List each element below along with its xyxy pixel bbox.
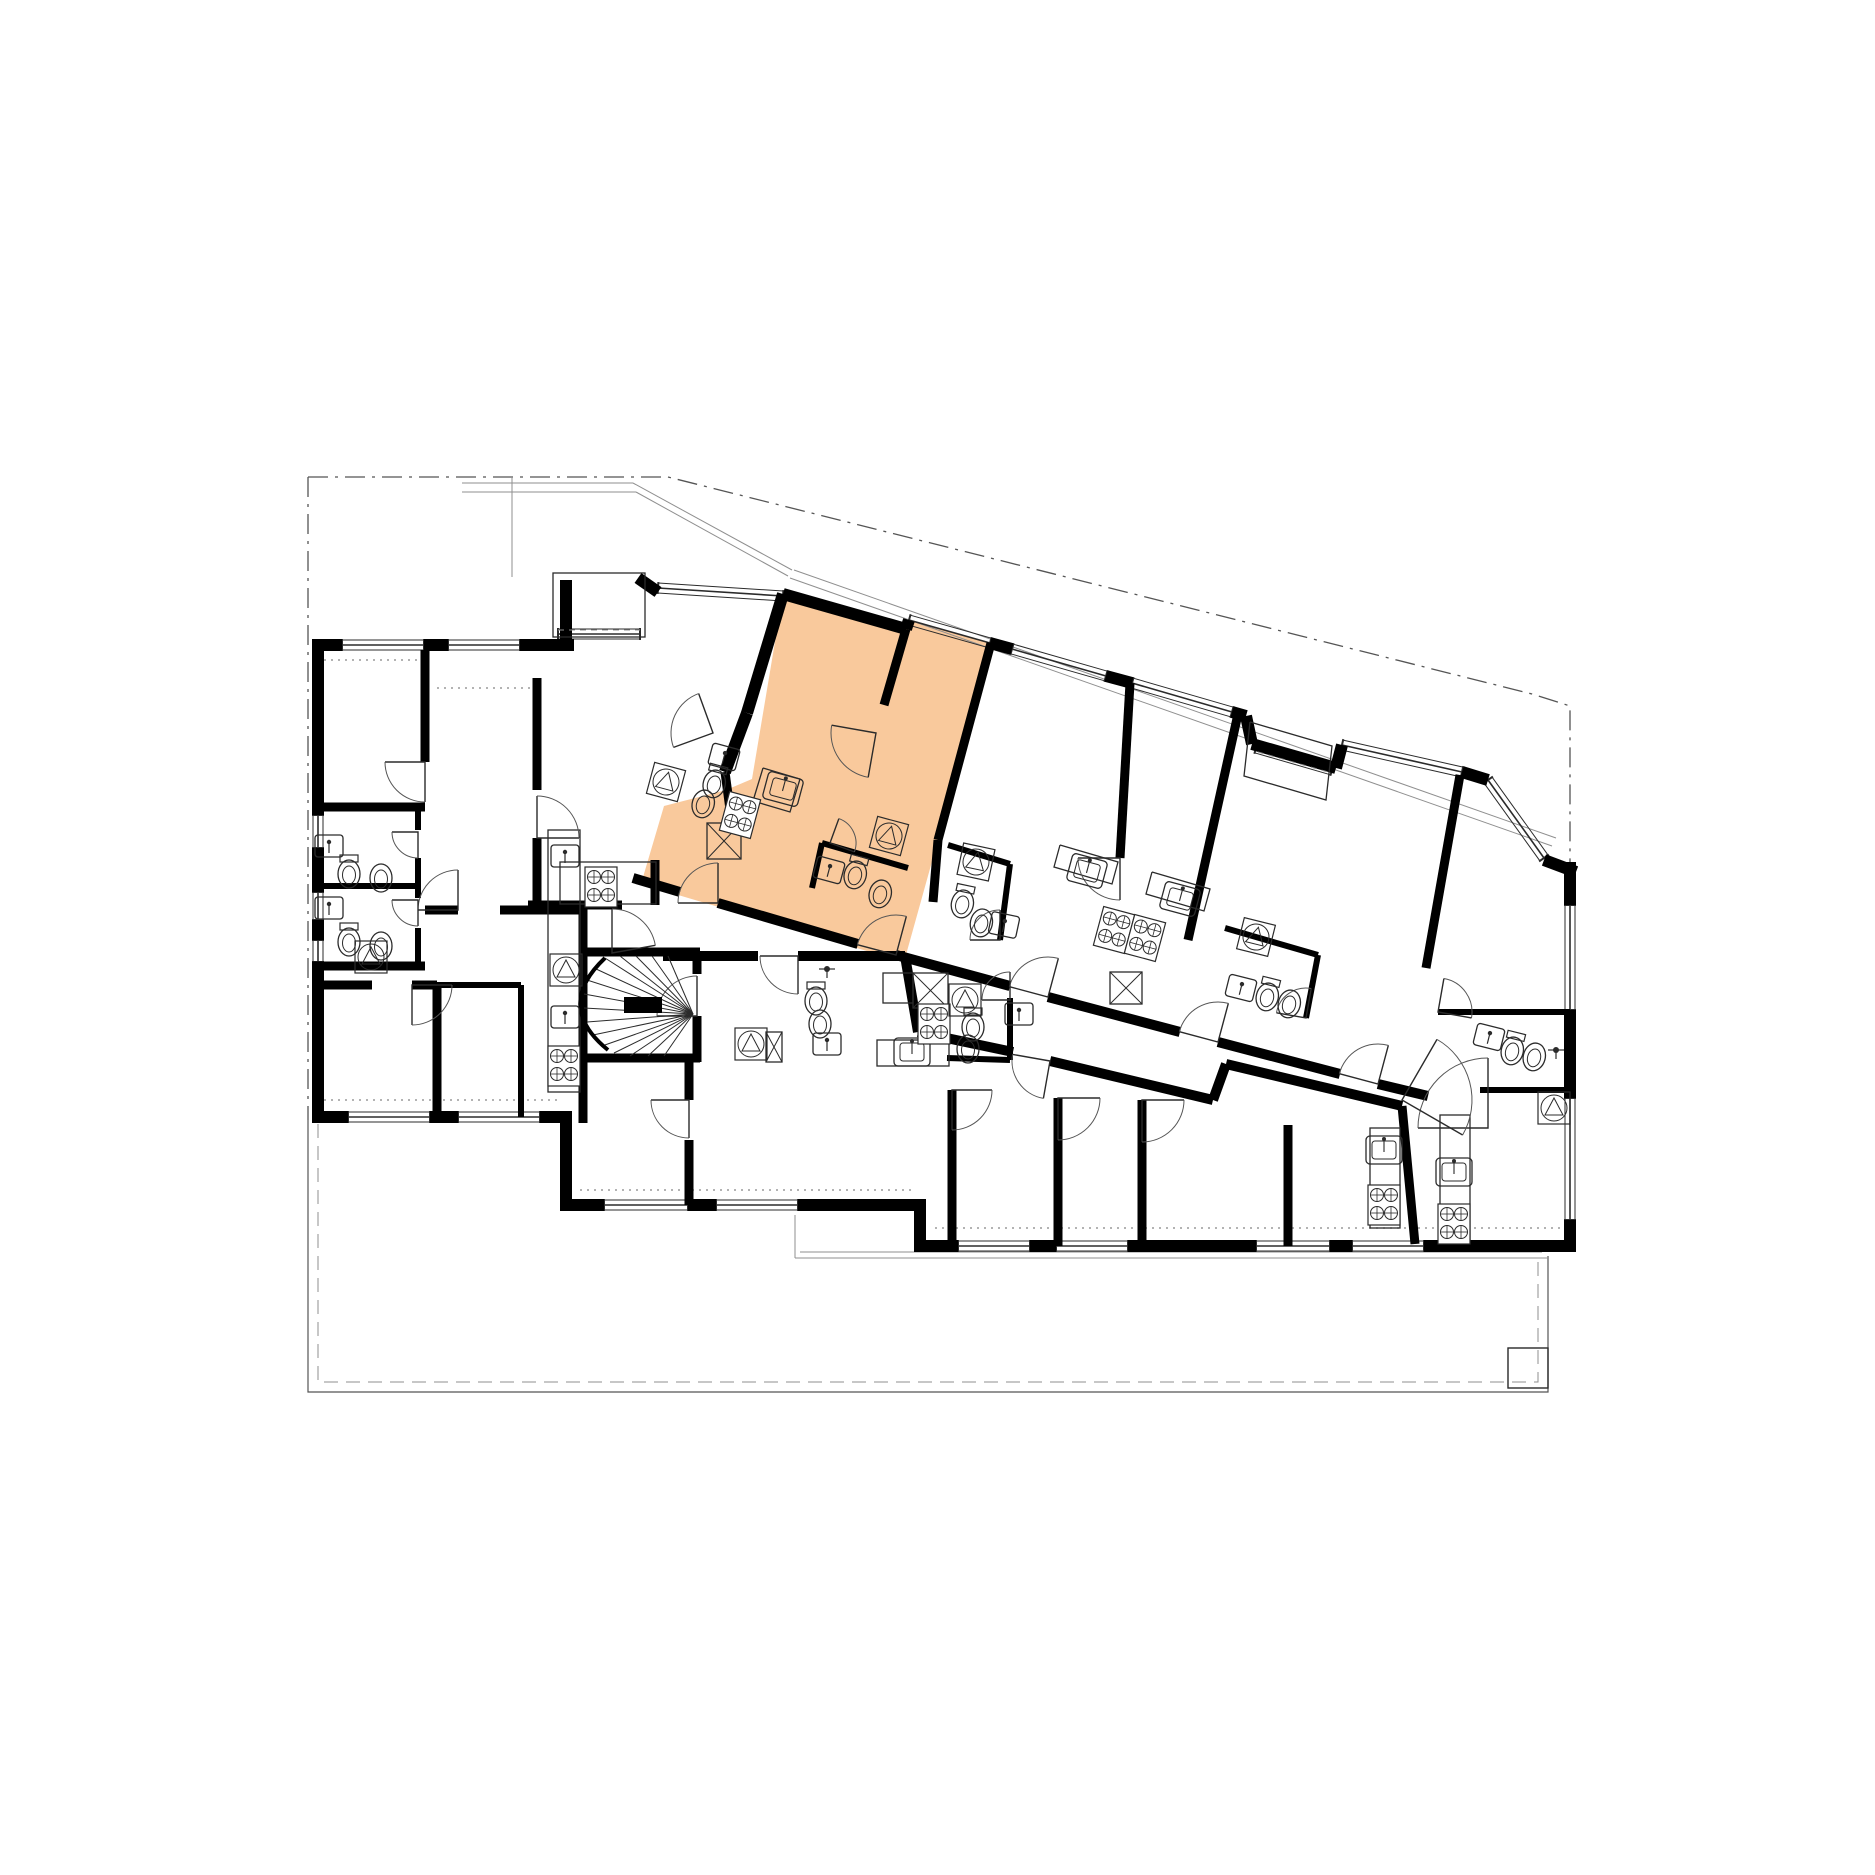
line — [1120, 683, 1130, 858]
drain-circle — [650, 766, 682, 798]
door-swing-arc — [612, 909, 655, 945]
door-swing-arc — [952, 1090, 992, 1130]
polyline — [633, 483, 792, 570]
line — [648, 1014, 693, 1056]
door-leaf — [1009, 958, 1058, 997]
cistern — [956, 883, 975, 894]
sink-icon — [551, 845, 579, 867]
bowl-inner — [814, 1016, 827, 1034]
stair-center-bar — [624, 997, 662, 1013]
door-leaf — [952, 1090, 992, 1130]
toilet-icon — [805, 982, 827, 1015]
kitchen-sink-icon — [1366, 1136, 1402, 1164]
symbol-triangle — [655, 770, 677, 791]
line — [1402, 1106, 1415, 1244]
symbol-triangle — [557, 960, 575, 977]
line — [725, 713, 747, 772]
line — [638, 578, 658, 592]
bidet-icon — [370, 864, 392, 892]
door-swing-arc — [760, 956, 798, 994]
sink-icon — [813, 1033, 841, 1055]
line — [1000, 864, 1010, 940]
door-leaf — [1058, 1098, 1100, 1140]
cistern — [1261, 976, 1280, 987]
cistern — [1506, 1030, 1525, 1041]
door-swing-arc — [1339, 1044, 1388, 1074]
symbol-triangle — [1545, 1098, 1563, 1115]
line — [906, 620, 909, 629]
sink-icon — [1225, 974, 1257, 1002]
line — [664, 1014, 693, 1056]
tray — [949, 984, 981, 1016]
door-swing-arc — [392, 900, 418, 926]
shower-icon — [949, 984, 981, 1016]
shower-icon — [646, 762, 685, 801]
door-leaf — [1142, 1100, 1184, 1142]
door-leaf — [674, 694, 713, 748]
bowl-inner — [343, 866, 356, 884]
sink-icon — [1473, 1023, 1505, 1051]
door-swing-arc — [1058, 1098, 1100, 1140]
line — [587, 1014, 693, 1022]
door-swing-arc — [1179, 1002, 1228, 1032]
polyline — [308, 1120, 1548, 1392]
bowl-inner — [810, 993, 823, 1011]
cistern — [340, 923, 358, 930]
shower-icon — [957, 843, 995, 881]
door-swing-arc — [412, 985, 452, 1025]
line — [933, 840, 938, 902]
bidet-icon — [1520, 1041, 1548, 1073]
shower-icon — [735, 1028, 767, 1060]
symbol-triangle — [742, 1034, 760, 1051]
line — [1488, 780, 1544, 858]
tray — [735, 1028, 767, 1060]
line — [1050, 1061, 1213, 1100]
stove-icon — [548, 1046, 580, 1086]
sink-icon — [551, 1006, 579, 1028]
door-swing-arc — [1437, 1039, 1472, 1135]
door-leaf — [1339, 1045, 1388, 1084]
line — [1378, 1084, 1428, 1096]
line — [1011, 654, 1105, 681]
shower-icon — [550, 954, 582, 986]
line — [1336, 745, 1342, 768]
line — [1048, 997, 1180, 1032]
door-swing-arc — [418, 870, 458, 910]
line — [947, 1058, 1010, 1060]
bowl-inner — [343, 934, 356, 952]
door-swing-arc — [537, 796, 579, 838]
bowl — [949, 888, 976, 920]
stove-frame — [918, 1004, 950, 1044]
line — [1342, 745, 1462, 772]
line — [905, 956, 918, 1032]
tap-icon — [1548, 1047, 1564, 1059]
line — [1106, 676, 1132, 683]
line — [1544, 860, 1576, 872]
bidet-icon — [370, 932, 392, 960]
door-leaf — [418, 870, 458, 910]
tap-icon — [819, 966, 835, 978]
door-swing-arc — [392, 832, 418, 858]
site-boundary — [308, 477, 1570, 1392]
symbol-triangle — [362, 947, 380, 964]
symbol-triangle — [956, 990, 974, 1007]
bowl-inner — [1526, 1048, 1543, 1069]
polyline — [318, 1124, 1538, 1382]
stove-frame — [585, 867, 617, 907]
stove-frame — [1438, 1204, 1470, 1244]
stove-frame — [1368, 1185, 1400, 1225]
counters-and-shafts — [548, 573, 1548, 1388]
line — [1341, 750, 1461, 777]
line — [1484, 783, 1540, 861]
bowl-inner — [954, 895, 970, 915]
tray — [646, 762, 685, 801]
cistern — [964, 1008, 982, 1015]
door-leaf — [1179, 1003, 1228, 1042]
door-leaf — [612, 909, 655, 953]
line — [1213, 1064, 1226, 1100]
stove-icon — [1368, 1185, 1400, 1225]
bowl — [1520, 1041, 1548, 1073]
highlight-unit-fill — [641, 594, 991, 962]
line — [614, 1014, 693, 1053]
door-leaf — [760, 956, 798, 994]
sink-icon — [315, 897, 343, 919]
stove-frame — [548, 1046, 580, 1086]
door-leaf — [1013, 1054, 1050, 1098]
bowl-inner — [1259, 988, 1276, 1009]
door-swing-arc — [385, 762, 425, 802]
door-leaf — [651, 1100, 689, 1138]
spiral-stair — [580, 956, 693, 1056]
stove-icon — [1438, 1204, 1470, 1244]
door-leaf — [537, 796, 579, 838]
bowl-inner — [967, 1019, 980, 1037]
bowl-inner — [1281, 995, 1298, 1016]
cistern — [807, 982, 825, 989]
line — [1188, 714, 1238, 940]
floor-plan-svg — [0, 0, 1875, 1875]
line — [1012, 649, 1106, 676]
bowl-inner — [1504, 1042, 1521, 1063]
line — [658, 588, 783, 596]
door-leaf — [412, 985, 452, 1025]
line — [1013, 644, 1107, 671]
door-swing-arc — [1009, 957, 1058, 987]
polyline — [636, 492, 788, 576]
polyline — [1054, 845, 1118, 884]
stove-icon — [918, 1004, 950, 1044]
stove-icon — [585, 867, 617, 907]
toilet-icon — [338, 923, 360, 956]
line — [1343, 740, 1463, 767]
line — [1492, 777, 1548, 855]
floor-plan-page — [0, 0, 1875, 1875]
door-swing-arc — [651, 1100, 689, 1138]
door-swing-arc — [1012, 1054, 1043, 1098]
door-swing-arc — [1142, 1100, 1184, 1142]
tray — [550, 954, 582, 986]
line — [1132, 683, 1232, 712]
highlight-unit — [641, 594, 991, 962]
line — [1462, 772, 1488, 780]
door-leaf — [385, 762, 425, 802]
kitchen-sink-icon — [1436, 1158, 1472, 1186]
